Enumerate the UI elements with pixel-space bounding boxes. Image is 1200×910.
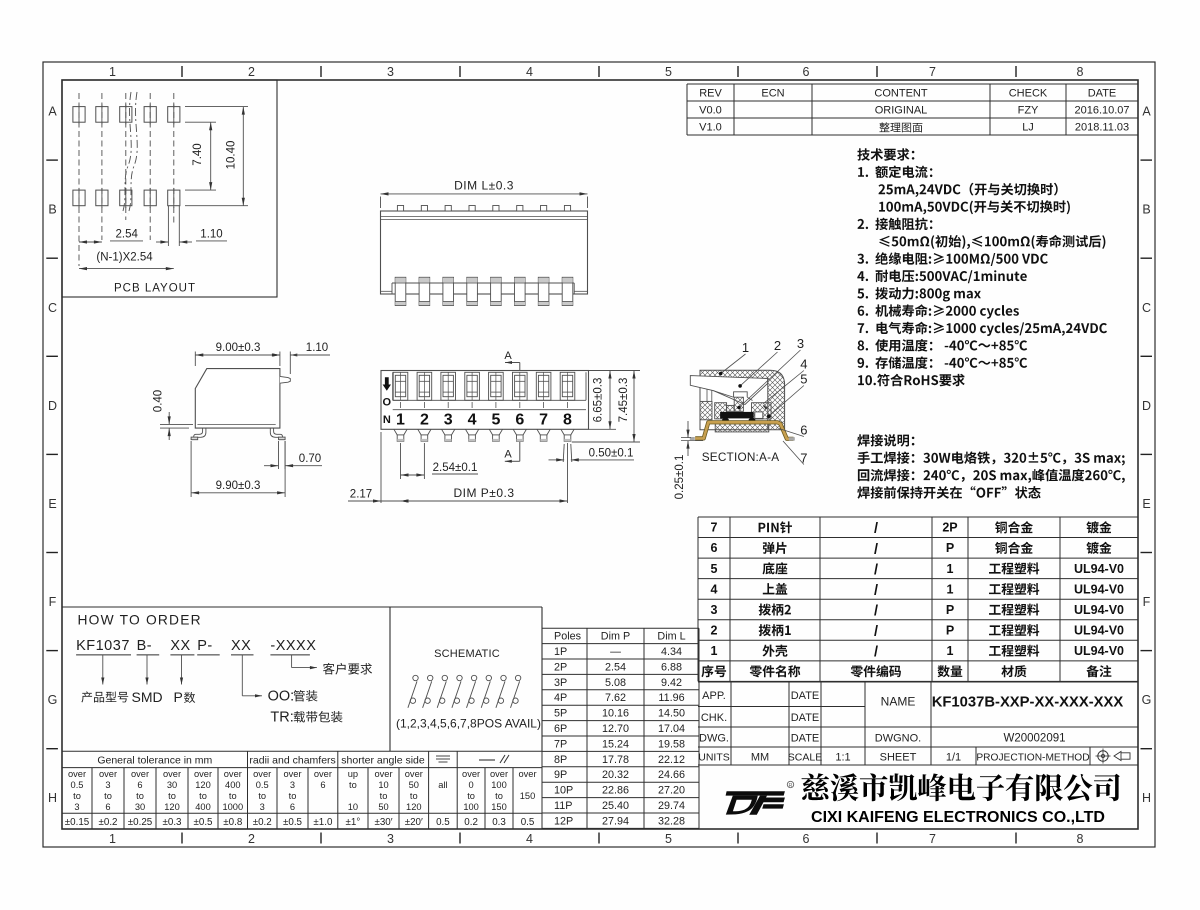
svg-text:A: A [1142,105,1151,119]
svg-text:/: / [874,562,878,578]
svg-text:7P: 7P [554,738,567,750]
svg-text:±0.2: ±0.2 [253,817,272,828]
svg-text:SMD: SMD [132,689,163,705]
svg-text:5.08: 5.08 [605,677,626,689]
svg-text:7: 7 [800,451,807,466]
svg-text:W20002091: W20002091 [1003,733,1065,745]
svg-text:±1°: ±1° [346,817,361,828]
svg-text:Dim L: Dim L [657,631,685,643]
svg-text:XX: XX [231,638,251,654]
svg-text:G: G [48,693,58,707]
svg-text:120: 120 [406,802,422,812]
svg-text:9.90±0.3: 9.90±0.3 [216,480,261,492]
svg-text:2: 2 [248,832,255,846]
svg-text:9.42: 9.42 [661,677,682,689]
svg-text:6: 6 [803,65,810,79]
svg-text:PROJECTION-METHOD: PROJECTION-METHOD [976,753,1089,764]
svg-text:APP.: APP. [702,690,726,702]
svg-text:0: 0 [469,780,474,790]
svg-text:22.12: 22.12 [658,754,685,766]
svg-text:17.78: 17.78 [602,754,629,766]
svg-text:4: 4 [526,832,533,846]
svg-text:0.5: 0.5 [71,780,84,790]
svg-text:0.5: 0.5 [521,817,535,828]
svg-text:to: to [349,780,357,790]
svg-text:over: over [374,769,392,779]
svg-text:over: over [283,769,301,779]
svg-text:32.28: 32.28 [658,815,685,827]
svg-text:0.40: 0.40 [153,390,165,412]
svg-text:P: P [174,689,183,705]
svg-text:1: 1 [109,832,116,846]
svg-text:3: 3 [797,336,804,351]
svg-text:UL94-V0: UL94-V0 [1074,582,1124,596]
svg-text:12.70: 12.70 [602,723,629,735]
svg-text:2: 2 [420,412,429,429]
svg-text:150: 150 [520,791,536,801]
svg-text:FZY: FZY [1018,105,1039,117]
svg-text:7: 7 [929,832,936,846]
svg-text:N: N [383,414,391,426]
svg-text:6: 6 [515,412,524,429]
svg-text:50: 50 [409,780,419,790]
svg-text:±0.3: ±0.3 [163,817,183,828]
svg-text:over: over [163,769,181,779]
svg-text:20.32: 20.32 [602,769,629,781]
svg-text:CONTENT: CONTENT [874,88,927,100]
svg-text:F: F [1143,595,1151,609]
svg-text:±1.0: ±1.0 [313,817,333,828]
svg-text:over: over [253,769,271,779]
svg-text:DIM P±0.3: DIM P±0.3 [453,486,514,500]
svg-text:UL94-V0: UL94-V0 [1074,644,1124,658]
svg-text:0.5: 0.5 [256,780,269,790]
svg-text:5: 5 [711,562,718,576]
svg-text:DATE: DATE [791,712,820,724]
svg-text:UNITS: UNITS [698,752,730,764]
svg-text:30: 30 [167,780,177,790]
svg-text:6: 6 [137,780,142,790]
svg-text:5: 5 [665,832,672,846]
svg-text:3: 3 [387,832,394,846]
svg-text:2P: 2P [554,661,567,673]
svg-text:14.50: 14.50 [658,708,685,720]
svg-text:7.40: 7.40 [192,143,204,165]
svg-text:17.04: 17.04 [658,723,685,735]
svg-text:V1.0: V1.0 [699,122,722,134]
svg-text:1:1: 1:1 [835,752,850,764]
svg-text:to: to [199,791,207,801]
svg-text:D: D [48,399,57,413]
svg-text:2: 2 [248,65,255,79]
svg-text:±0.8: ±0.8 [223,817,243,828]
svg-text:7.62: 7.62 [605,692,626,704]
svg-text:A: A [48,105,57,119]
svg-text:SECTION:A-A: SECTION:A-A [702,450,780,464]
svg-text:P: P [946,624,954,638]
svg-text:ECN: ECN [761,88,784,100]
svg-text:0.25±0.1: 0.25±0.1 [674,455,686,500]
svg-text:120: 120 [195,780,211,790]
svg-text:General tolerance in mm: General tolerance in mm [97,755,212,767]
svg-text:over: over [518,769,536,779]
svg-text:8P: 8P [554,754,567,766]
svg-text:up: up [348,769,358,779]
svg-text:150: 150 [491,802,507,812]
svg-text:to: to [168,791,176,801]
svg-text:2.54±0.1: 2.54±0.1 [433,462,478,474]
svg-text:radii and chamfers: radii and chamfers [249,755,335,767]
svg-text:/: / [874,603,878,619]
svg-text:11P: 11P [554,800,572,812]
svg-text:(N-1)X2.54: (N-1)X2.54 [96,252,153,264]
svg-text:UL94-V0: UL94-V0 [1074,603,1124,617]
svg-text:3: 3 [260,802,265,812]
svg-text:to: to [495,791,503,801]
svg-text:±0.15: ±0.15 [65,817,90,828]
svg-text:2.54: 2.54 [605,661,626,673]
svg-text:/: / [874,542,878,558]
svg-text:HOW TO ORDER: HOW TO ORDER [78,613,202,628]
svg-text:PCB LAYOUT: PCB LAYOUT [114,283,196,295]
svg-text:6.88: 6.88 [661,661,682,673]
svg-text:V0.0: V0.0 [699,105,722,117]
svg-text:8: 8 [563,412,572,429]
svg-text:O: O [383,397,392,409]
svg-text:1.10: 1.10 [306,342,328,354]
svg-text:4: 4 [468,412,477,429]
svg-text:10: 10 [348,802,358,812]
svg-text:SCALE: SCALE [788,752,822,764]
svg-text:ORIGINAL: ORIGINAL [875,105,928,117]
svg-text:/: / [874,521,878,537]
svg-text:±30′: ±30′ [374,817,392,828]
svg-text:DWGNO.: DWGNO. [875,733,921,745]
svg-text:25.40: 25.40 [602,800,629,812]
svg-text:TR:: TR: [270,710,293,726]
svg-text:KF1037: KF1037 [76,638,130,654]
svg-text:0.50±0.1: 0.50±0.1 [589,448,634,460]
svg-text:7: 7 [929,65,936,79]
svg-text:3: 3 [387,65,394,79]
svg-text:3: 3 [711,603,718,617]
svg-text:CIXI KAIFENG ELECTRONICS CO.,L: CIXI KAIFENG ELECTRONICS CO.,LTD [811,809,1105,826]
svg-text:29.74: 29.74 [658,800,685,812]
svg-text:11.96: 11.96 [658,692,684,704]
svg-text:1: 1 [109,65,116,79]
svg-text:6: 6 [800,423,807,438]
svg-text:6.65±0.3: 6.65±0.3 [593,378,605,423]
svg-text:CHECK: CHECK [1009,88,1048,100]
svg-text:2: 2 [711,624,718,638]
svg-text:C: C [1142,301,1151,315]
svg-text:CHK.: CHK. [701,712,727,724]
svg-text:0.2: 0.2 [464,817,478,828]
svg-text:P: P [946,541,954,555]
svg-text:12P: 12P [554,815,573,827]
svg-text:1000: 1000 [222,802,243,812]
svg-text:DATE: DATE [791,690,820,702]
svg-text:F: F [49,595,57,609]
svg-text:4: 4 [800,357,807,372]
svg-text:10.16: 10.16 [602,708,629,720]
svg-text:over: over [490,769,508,779]
svg-text:B: B [48,203,56,217]
svg-text:±0.5: ±0.5 [283,817,303,828]
svg-text:B: B [1142,203,1150,217]
svg-text:0.5: 0.5 [436,817,450,828]
svg-text:2P: 2P [942,521,957,535]
svg-text:over: over [462,769,480,779]
svg-text:A: A [504,449,512,461]
svg-text:1.10: 1.10 [200,229,222,241]
svg-text:A: A [504,350,512,362]
svg-text:27.20: 27.20 [658,785,685,797]
svg-text:P: P [946,603,954,617]
svg-text:9.00±0.3: 9.00±0.3 [216,342,261,354]
svg-text:over: over [68,769,86,779]
svg-text:2016.10.07: 2016.10.07 [1074,105,1129,117]
svg-text:0.70: 0.70 [299,453,321,465]
svg-text:NAME: NAME [881,695,916,709]
svg-text:B-: B- [137,638,153,654]
svg-text:7: 7 [539,412,548,429]
svg-text:DATE: DATE [791,733,820,745]
svg-text:4.34: 4.34 [661,646,682,658]
svg-text:6: 6 [803,832,810,846]
svg-text:REV: REV [699,88,722,100]
svg-text:over: over [131,769,149,779]
svg-text:6: 6 [105,802,110,812]
svg-text:50: 50 [378,802,388,812]
svg-text:24.66: 24.66 [658,769,685,781]
svg-text:OO:: OO: [268,689,295,705]
svg-text:±0.5: ±0.5 [194,817,214,828]
svg-text:over: over [194,769,212,779]
svg-text:3: 3 [290,780,295,790]
svg-text:H: H [1142,791,1151,805]
svg-text:3: 3 [74,802,79,812]
svg-text:KF1037B-XXP-XX-XXX-XXX: KF1037B-XXP-XX-XXX-XXX [932,695,1124,711]
svg-text:19.58: 19.58 [658,738,685,750]
svg-text:10P: 10P [554,785,573,797]
svg-text:to: to [410,791,418,801]
svg-text:10: 10 [378,780,388,790]
svg-text:2: 2 [774,338,781,353]
svg-text:P-: P- [197,638,213,654]
svg-text:to: to [73,791,81,801]
svg-text:4: 4 [526,65,533,79]
svg-text:400: 400 [195,802,211,812]
svg-text:C: C [48,301,57,315]
svg-text:400: 400 [225,780,241,790]
svg-text:4P: 4P [554,692,567,704]
svg-text:1/1: 1/1 [946,752,961,764]
svg-text:all: all [438,780,447,790]
svg-text:3: 3 [444,412,453,429]
svg-text:—: — [610,646,621,658]
svg-text:3: 3 [105,780,110,790]
svg-text:30: 30 [135,802,145,812]
svg-text:SCHEMATIC: SCHEMATIC [434,648,500,660]
svg-text:SHEET: SHEET [880,752,917,764]
svg-text:2.54: 2.54 [116,229,139,241]
svg-text:UL94-V0: UL94-V0 [1074,624,1124,638]
svg-text:/: / [874,645,878,661]
svg-text:over: over [224,769,242,779]
svg-text:8: 8 [1077,832,1084,846]
svg-text:DIM L±0.3: DIM L±0.3 [454,179,514,193]
svg-text:27.94: 27.94 [602,815,629,827]
svg-text:6: 6 [711,541,718,555]
svg-text:2018.11.03: 2018.11.03 [1075,122,1129,134]
svg-text:to: to [258,791,266,801]
svg-text:to: to [380,791,388,801]
svg-text:-XXXX: -XXXX [270,638,316,654]
svg-text:7.45±0.3: 7.45±0.3 [618,378,630,423]
svg-text:LJ: LJ [1022,122,1034,134]
svg-text:/: / [874,624,878,640]
svg-text:to: to [104,791,112,801]
svg-text:DWG.: DWG. [699,733,729,745]
svg-text:±0.25: ±0.25 [128,817,153,828]
svg-text:UL94-V0: UL94-V0 [1074,562,1124,576]
svg-text:/: / [874,583,878,599]
svg-text:6: 6 [290,802,295,812]
svg-text:0.3: 0.3 [492,817,506,828]
svg-text:1: 1 [742,340,749,355]
svg-text:±0.2: ±0.2 [99,817,118,828]
svg-text:to: to [289,791,297,801]
svg-text:(1,2,3,4,5,6,7,8POS AVAIL): (1,2,3,4,5,6,7,8POS AVAIL) [396,717,541,731]
svg-text:over: over [99,769,117,779]
svg-text:G: G [1142,693,1152,707]
svg-text:5: 5 [800,372,807,387]
svg-text:E: E [1142,497,1150,511]
svg-text:DATE: DATE [1088,88,1117,100]
svg-text:E: E [48,497,56,511]
svg-text:Poles: Poles [554,631,582,643]
svg-text:1: 1 [396,412,405,429]
svg-text:22.86: 22.86 [602,785,629,797]
svg-text:6: 6 [320,780,325,790]
svg-text:1: 1 [947,562,954,576]
svg-text:1P: 1P [554,646,567,658]
svg-text:3P: 3P [554,677,567,689]
svg-text:Dim P: Dim P [601,631,630,643]
svg-text:4: 4 [711,582,718,596]
svg-text:5P: 5P [554,708,567,720]
svg-text:6P: 6P [554,723,567,735]
svg-text:to: to [136,791,144,801]
svg-text:shorter angle side: shorter angle side [341,755,425,767]
svg-text:8: 8 [1077,65,1084,79]
svg-text:1: 1 [947,644,954,658]
svg-text:R: R [789,783,793,789]
svg-text:MM: MM [751,752,769,764]
svg-text:10.40: 10.40 [226,141,238,170]
svg-text:over: over [405,769,423,779]
svg-text:2.17: 2.17 [350,489,372,501]
svg-text:7: 7 [711,521,718,535]
svg-text:to: to [467,791,475,801]
svg-text:1: 1 [711,644,718,658]
svg-text:1: 1 [947,582,954,596]
svg-text:9P: 9P [554,769,567,781]
svg-text:15.24: 15.24 [602,738,629,750]
svg-text:over: over [314,769,332,779]
svg-text:D: D [1142,399,1151,413]
svg-text:XX: XX [170,638,190,654]
svg-text:120: 120 [164,802,180,812]
svg-text:100: 100 [491,780,507,790]
svg-text:to: to [229,791,237,801]
svg-text:100: 100 [463,802,479,812]
svg-text:5: 5 [665,65,672,79]
svg-text:±20′: ±20′ [405,817,423,828]
svg-text:H: H [48,791,57,805]
svg-text:5: 5 [491,412,500,429]
